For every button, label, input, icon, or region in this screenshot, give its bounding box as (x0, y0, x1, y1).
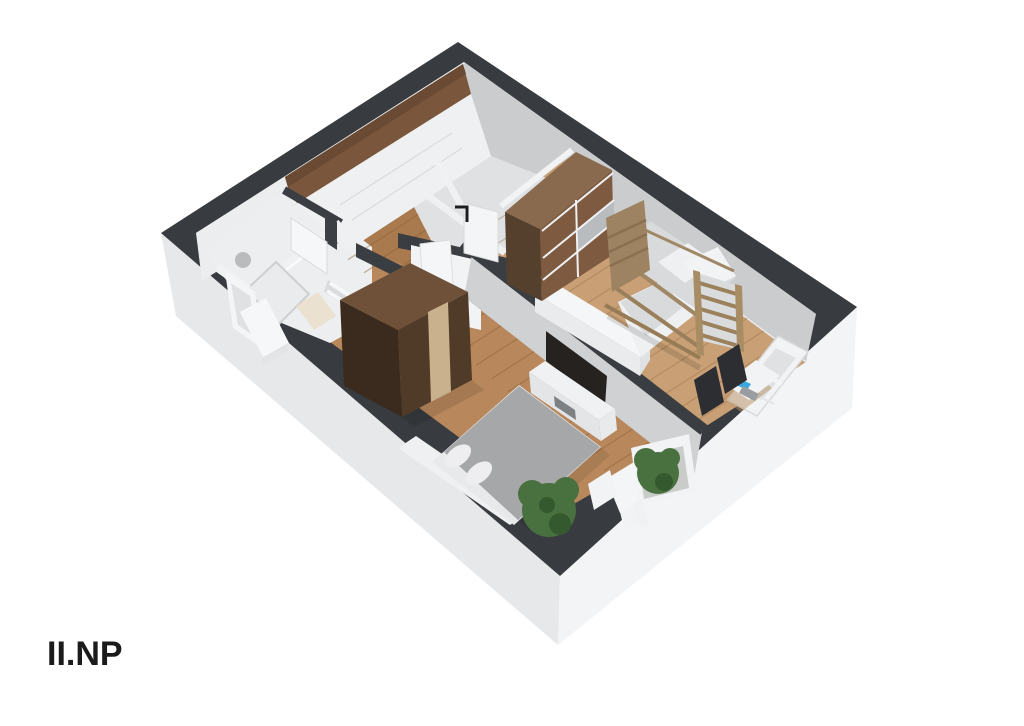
svg-text:II.NP: II.NP (47, 635, 123, 673)
